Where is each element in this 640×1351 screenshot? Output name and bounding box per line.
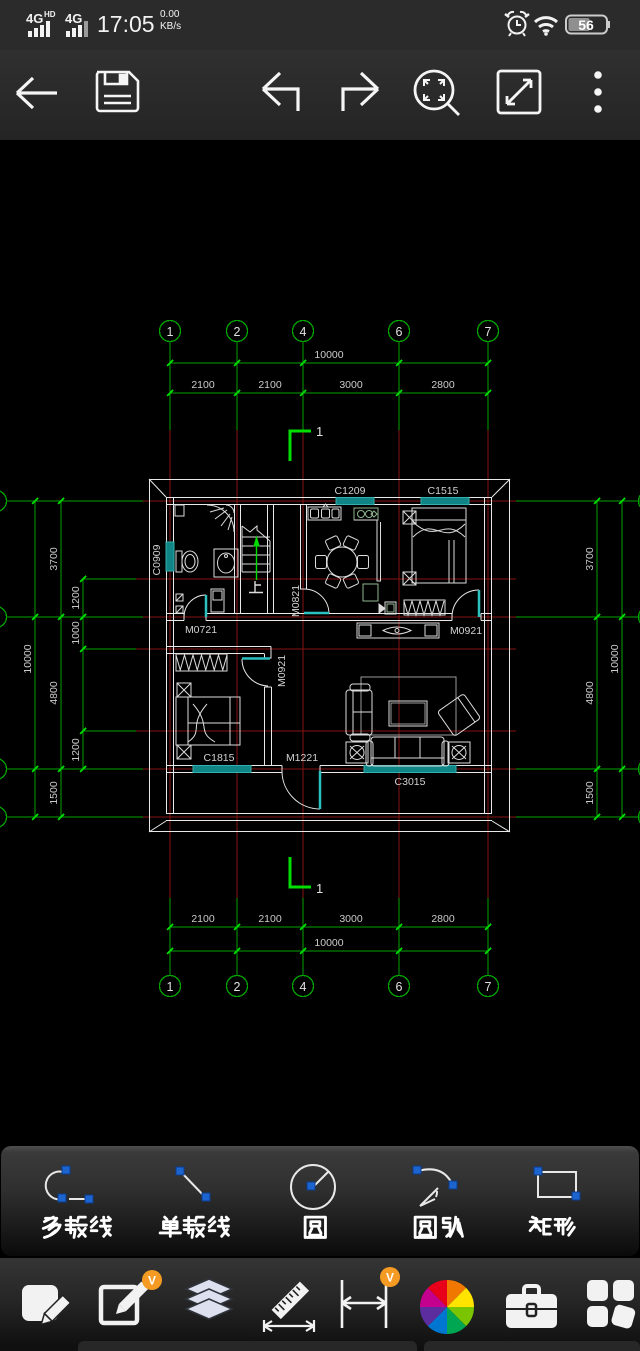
svg-text:4G: 4G (65, 11, 82, 26)
svg-text:KB/s: KB/s (160, 21, 181, 32)
svg-text:HD: HD (44, 10, 56, 19)
svg-text:0.00: 0.00 (160, 9, 180, 20)
svg-text:V: V (148, 1274, 156, 1288)
svg-text:4G: 4G (26, 11, 43, 26)
svg-text:V: V (386, 1271, 394, 1285)
svg-text:56: 56 (578, 17, 594, 33)
svg-text:17:05: 17:05 (97, 11, 155, 37)
